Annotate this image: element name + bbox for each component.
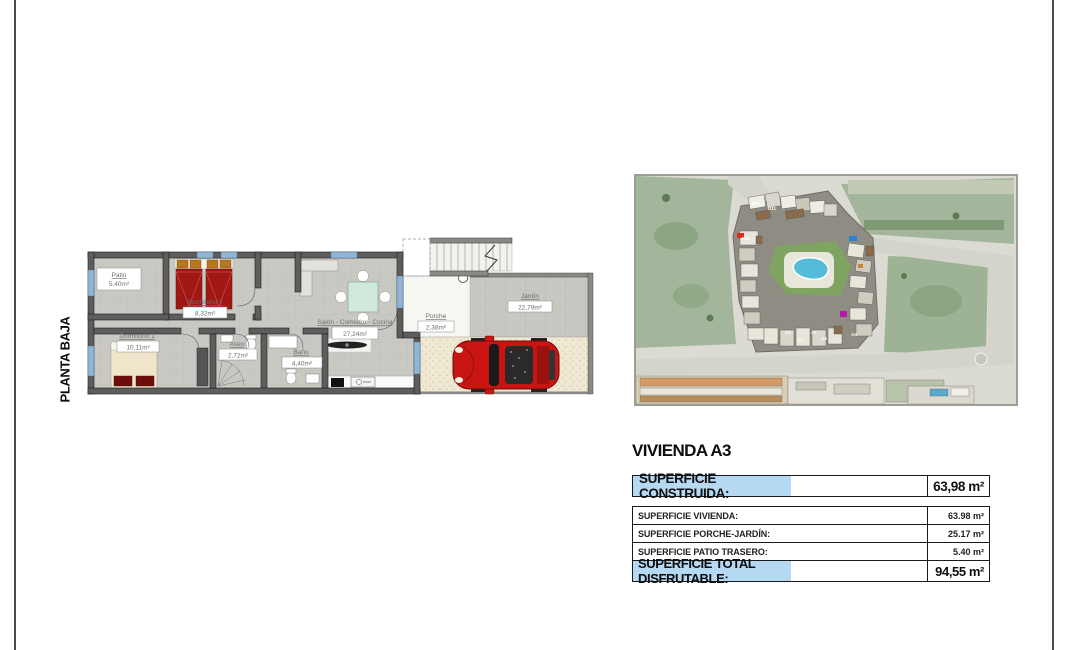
superficie-construida-row: SUPERFICIE CONSTRUIDA: 63,98 m²: [632, 475, 990, 497]
room-label-patio: Patio 5,40m²: [97, 268, 141, 290]
surface-detail-table: SUPERFICIE VIVIENDA: 63.98 m² SUPERFICIE…: [632, 506, 990, 582]
unit-title: VIVIENDA A3: [632, 441, 990, 461]
stove: [331, 378, 344, 387]
construida-spacer: [791, 476, 927, 496]
table-row: SUPERFICIE PORCHE-JARDÍN: 25.17 m²: [633, 524, 989, 542]
total-row: SUPERFICIE TOTAL DISFRUTABLE: 94,55 m²: [633, 560, 989, 581]
surface-info-panel: VIVIENDA A3 SUPERFICIE CONSTRUIDA: 63,98…: [632, 441, 990, 582]
kitchen-counter: [328, 376, 414, 388]
svg-text:5,40m²: 5,40m²: [109, 281, 130, 288]
boundary-wall: [588, 273, 593, 394]
svg-text:Salón - Comedor - Cocina: Salón - Comedor - Cocina: [317, 319, 393, 326]
document-page: PLANTA BAJA: [0, 0, 1070, 650]
site-map-frame: D12 D11 D13 A5 A2 A7 A3 A4: [634, 174, 1018, 406]
svg-text:2,72m²: 2,72m²: [228, 353, 249, 360]
svg-text:Porche: Porche: [426, 313, 447, 320]
floor-plan: Patio 5,40m² Dormitorio 2 8,32m² Dormito…: [85, 230, 615, 402]
svg-text:4,40m²: 4,40m²: [292, 361, 313, 368]
room-label-dormitorio2: Dormitorio 2 8,32m²: [183, 299, 227, 318]
blue-pool-marker: [849, 236, 857, 241]
svg-text:Jardín: Jardín: [521, 293, 539, 300]
svg-text:Baño: Baño: [293, 349, 309, 356]
svg-text:D12: D12: [752, 201, 761, 206]
svg-text:A5: A5: [785, 330, 791, 335]
ceiling-fan: [327, 342, 367, 349]
svg-text:A3: A3: [821, 336, 827, 341]
table-row: SUPERFICIE VIVIENDA: 63.98 m²: [633, 507, 989, 524]
svg-text:A7: A7: [811, 330, 817, 335]
red-car: [453, 336, 559, 394]
svg-text:Dormitorio 1: Dormitorio 1: [119, 333, 155, 340]
stairs: [430, 238, 512, 276]
svg-text:27,24m²: 27,24m²: [343, 331, 368, 338]
svg-text:D11: D11: [768, 206, 777, 211]
svg-text:A2: A2: [797, 337, 803, 342]
construida-label: SUPERFICIE CONSTRUIDA:: [633, 476, 791, 496]
wardrobe: [197, 348, 208, 386]
svg-text:22,79m²: 22,79m²: [518, 305, 543, 312]
construida-value: 63,98 m²: [927, 476, 989, 496]
svg-text:Patio: Patio: [112, 272, 127, 279]
open-void-dashed: [403, 239, 430, 276]
umbrella-marker: [858, 264, 863, 268]
highlighted-unit-marker: [840, 311, 847, 317]
svg-text:2,38m²: 2,38m²: [426, 325, 447, 332]
svg-text:Dormitorio 2: Dormitorio 2: [187, 299, 223, 306]
site-map: D12 D11 D13 A5 A2 A7 A3 A4: [636, 176, 1016, 404]
floor-plan-title: PLANTA BAJA: [58, 305, 73, 415]
svg-text:A4: A4: [851, 332, 857, 337]
svg-text:Aseo: Aseo: [230, 341, 245, 348]
page-border-right: [1052, 0, 1054, 650]
page-border-left: [14, 0, 16, 650]
svg-text:8,32m²: 8,32m²: [195, 311, 216, 318]
svg-text:10,11m²: 10,11m²: [126, 345, 150, 352]
svg-text:D13: D13: [742, 236, 751, 241]
room-label-dormitorio1: Dormitorio 1 10,11m²: [117, 333, 159, 352]
